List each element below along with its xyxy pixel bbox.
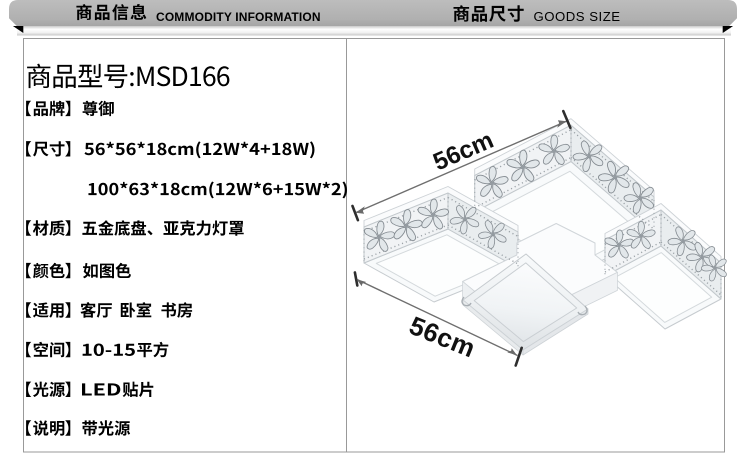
- svg-text:GOODS SIZE: GOODS SIZE: [534, 9, 621, 24]
- svg-text:COMMODITY INFORMATION: COMMODITY INFORMATION: [156, 10, 321, 24]
- svg-text:56cm: 56cm: [405, 310, 480, 363]
